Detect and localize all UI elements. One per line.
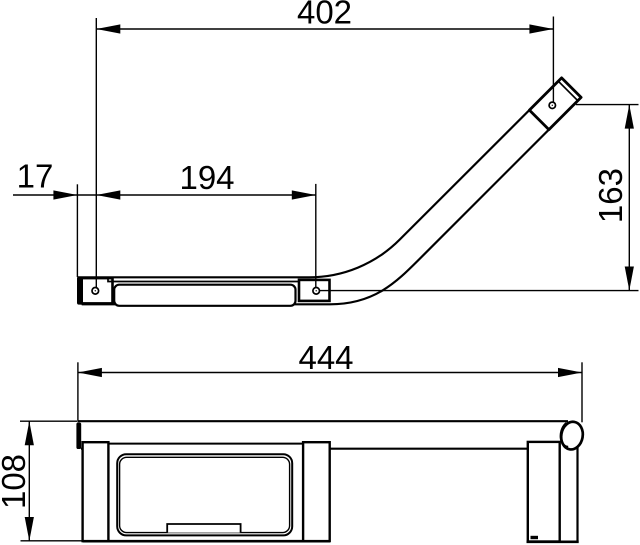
svg-text:163: 163: [592, 168, 629, 223]
svg-text:108: 108: [0, 454, 32, 509]
svg-text:17: 17: [17, 157, 54, 194]
svg-text:444: 444: [298, 339, 353, 376]
svg-text:402: 402: [297, 0, 352, 31]
svg-text:194: 194: [179, 159, 234, 196]
